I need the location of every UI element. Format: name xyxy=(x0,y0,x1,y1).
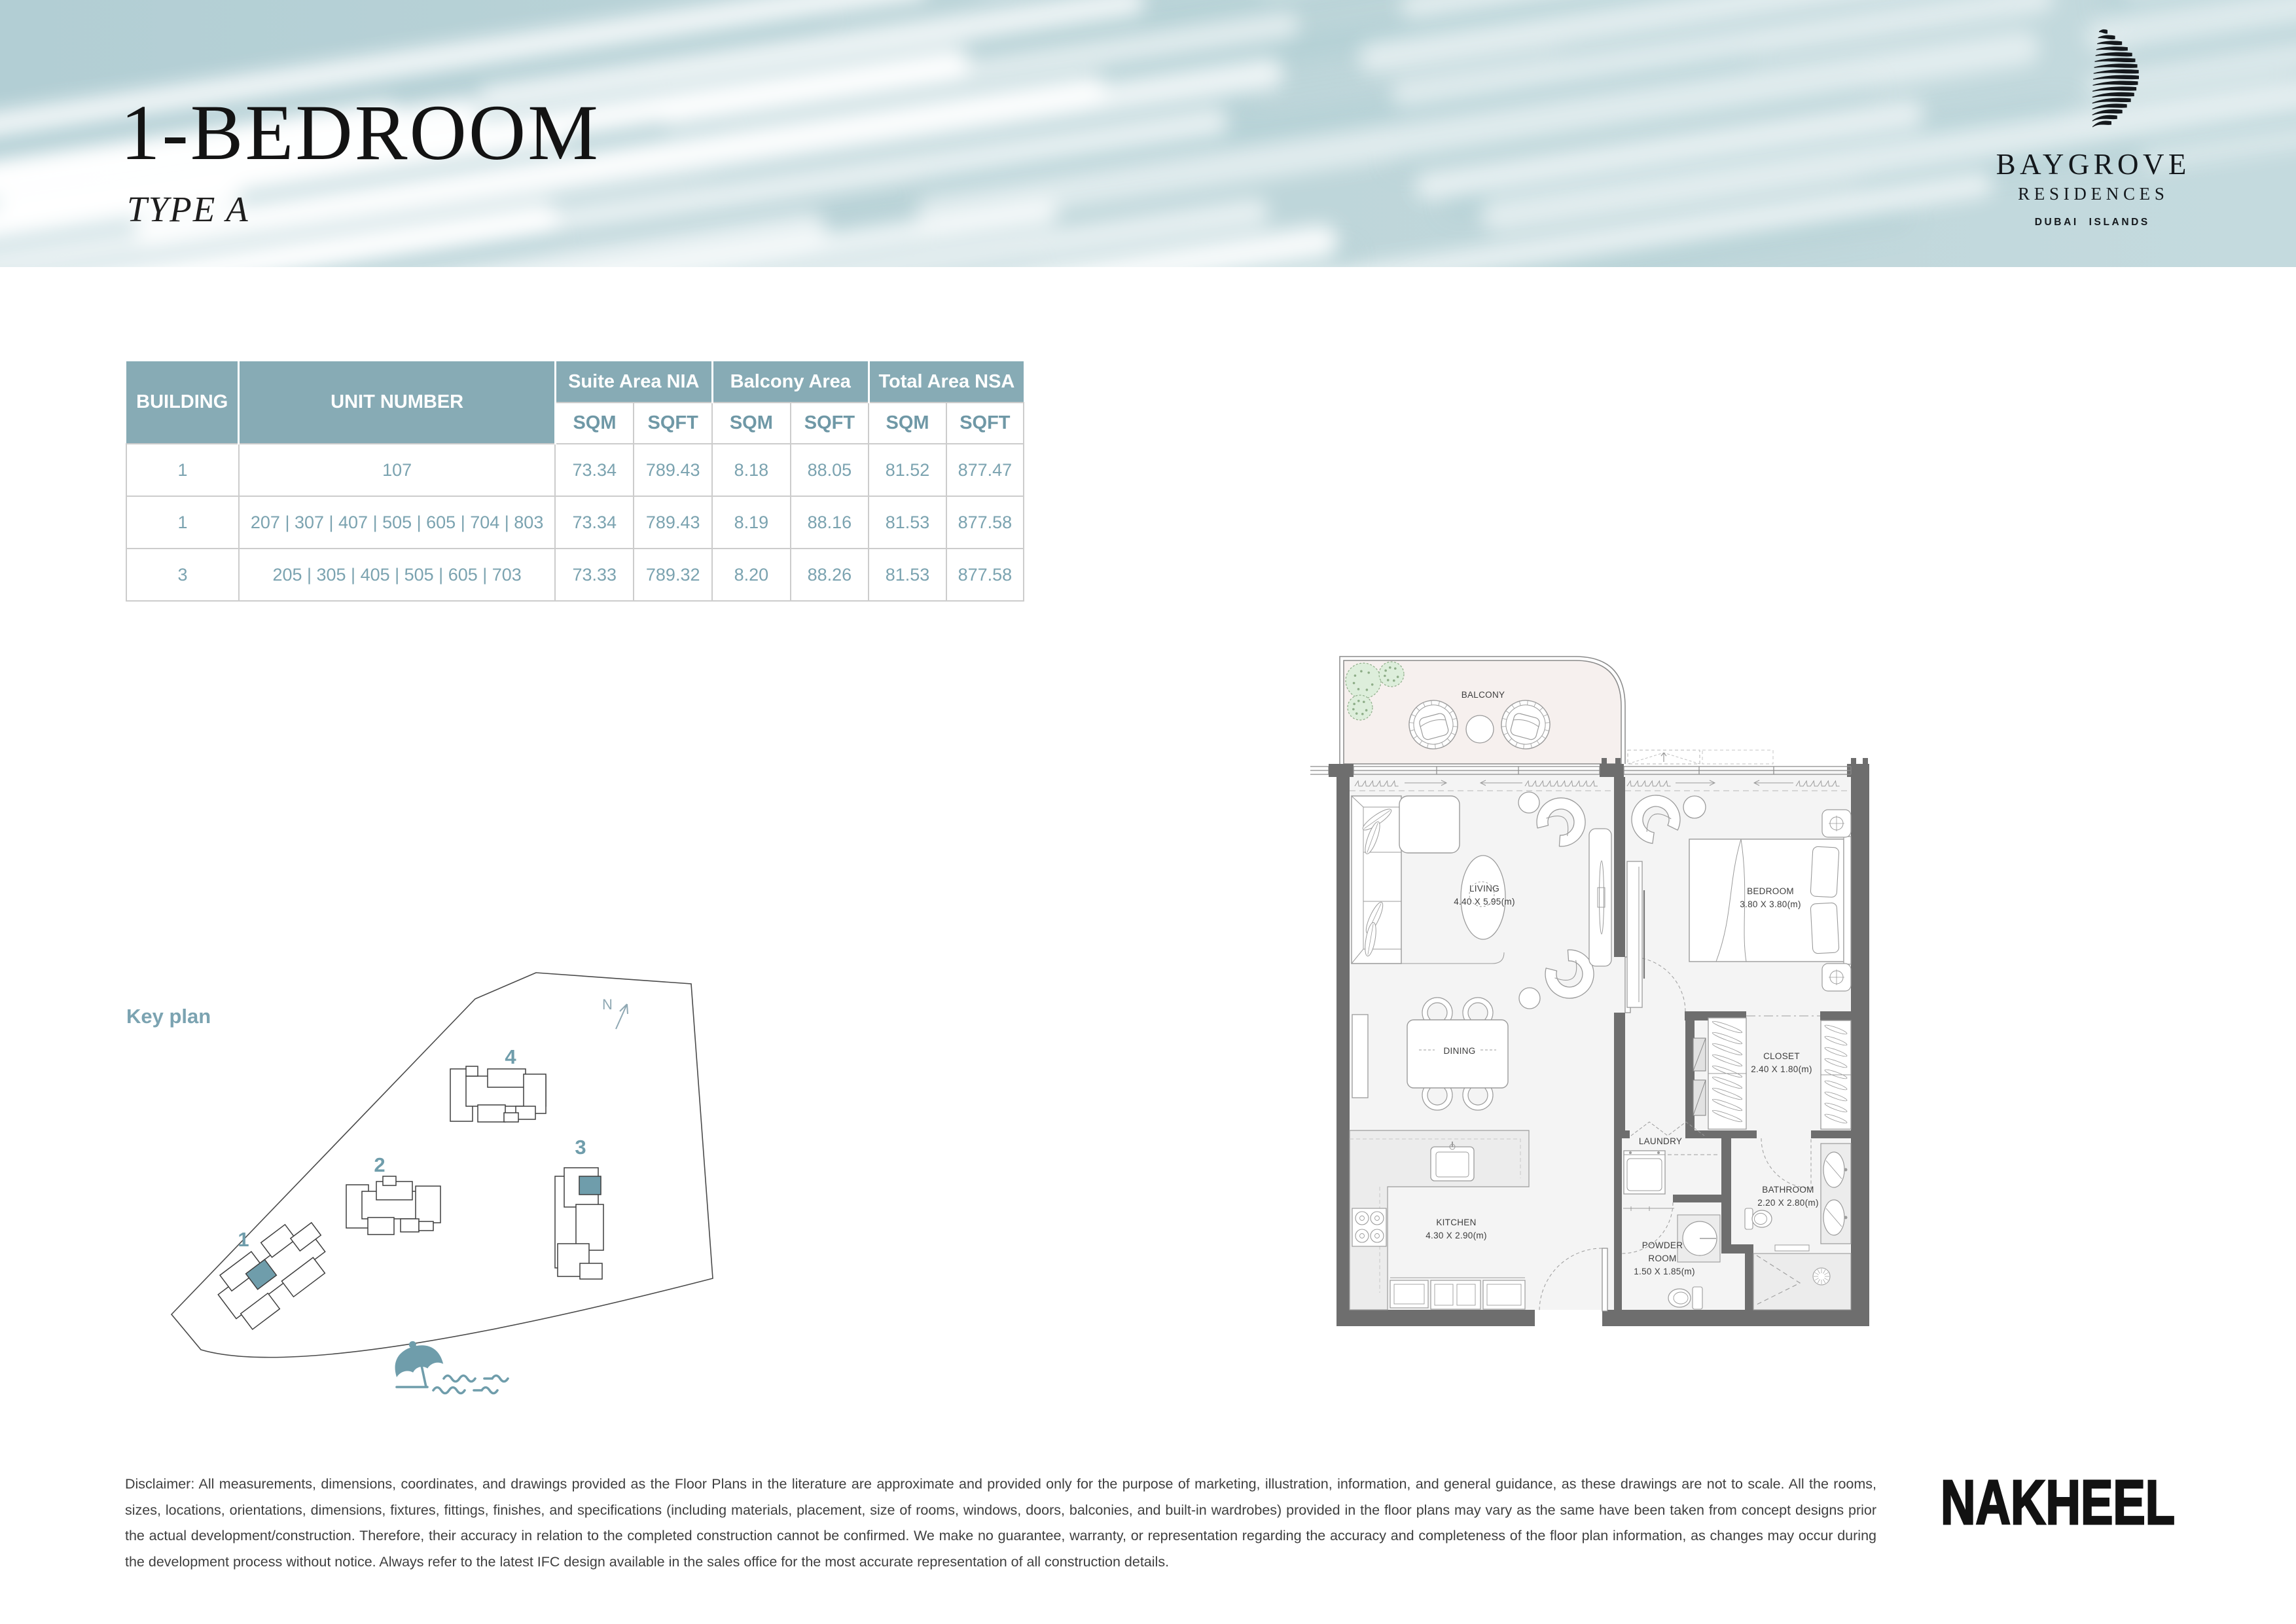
svg-text:BATHROOM: BATHROOM xyxy=(1762,1185,1814,1195)
svg-text:Key plan: Key plan xyxy=(126,1005,211,1028)
svg-text:4: 4 xyxy=(505,1045,516,1068)
svg-text:4.30 X 2.90(m): 4.30 X 2.90(m) xyxy=(1426,1231,1487,1240)
svg-text:2: 2 xyxy=(374,1153,385,1176)
svg-text:N: N xyxy=(602,996,613,1013)
svg-text:KITCHEN: KITCHEN xyxy=(1436,1218,1476,1227)
svg-text:LIVING: LIVING xyxy=(1469,884,1499,893)
svg-text:LAUNDRY: LAUNDRY xyxy=(1639,1136,1682,1146)
svg-text:BEDROOM: BEDROOM xyxy=(1747,886,1794,896)
svg-text:NAKHEEL: NAKHEEL xyxy=(1941,1474,2175,1536)
svg-text:2.20 X 2.80(m): 2.20 X 2.80(m) xyxy=(1757,1198,1819,1208)
svg-text:2.40 X 1.80(m): 2.40 X 1.80(m) xyxy=(1751,1064,1812,1074)
svg-text:DINING: DINING xyxy=(1443,1046,1475,1056)
svg-text:1: 1 xyxy=(238,1228,249,1251)
svg-text:BALCONY: BALCONY xyxy=(1462,690,1505,700)
svg-text:ROOM: ROOM xyxy=(1648,1254,1676,1263)
svg-text:POWDER: POWDER xyxy=(1642,1240,1683,1250)
svg-text:1.50 X 1.85(m): 1.50 X 1.85(m) xyxy=(1634,1267,1695,1276)
svg-text:3: 3 xyxy=(575,1136,586,1159)
svg-text:4.40 X 5.95(m): 4.40 X 5.95(m) xyxy=(1454,897,1515,907)
svg-text:CLOSET: CLOSET xyxy=(1763,1051,1800,1061)
svg-text:3.80 X 3.80(m): 3.80 X 3.80(m) xyxy=(1740,899,1801,909)
